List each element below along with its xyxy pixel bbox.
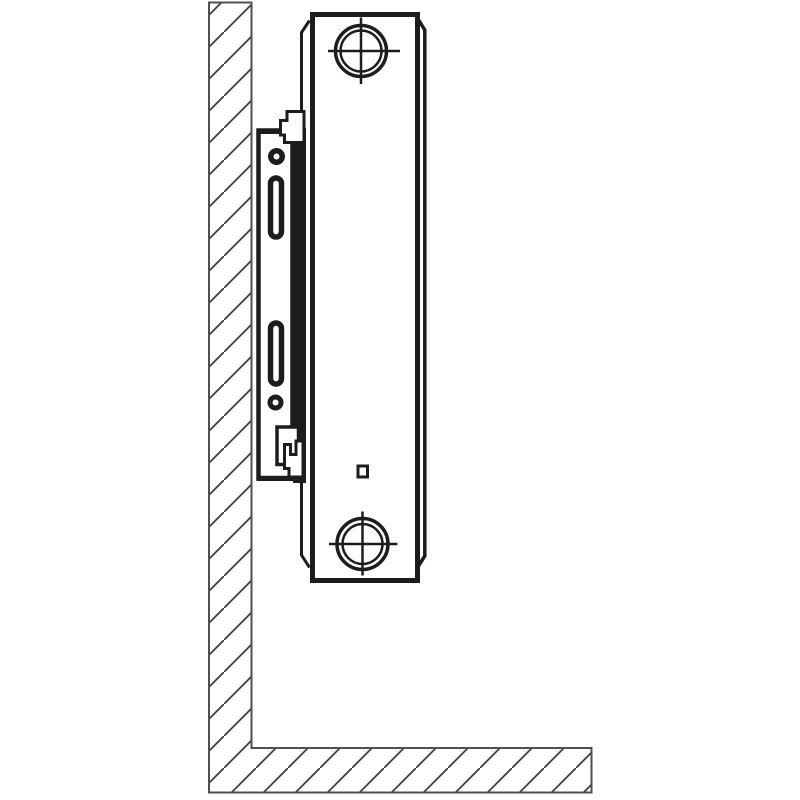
bracket-slot-upper — [271, 178, 282, 237]
radiator-vent-square — [358, 466, 368, 477]
diagram-stage — [0, 0, 800, 800]
bracket-top-hook — [281, 112, 305, 143]
wall-bracket — [257, 112, 307, 484]
radiator-body — [313, 15, 418, 581]
radiator-mounting-diagram — [0, 0, 800, 800]
bracket-screw-hole-lower — [268, 395, 284, 411]
radiator-panel — [313, 15, 418, 581]
bracket-screw-hole-upper — [268, 148, 285, 165]
bracket-slot-lower — [271, 323, 282, 384]
